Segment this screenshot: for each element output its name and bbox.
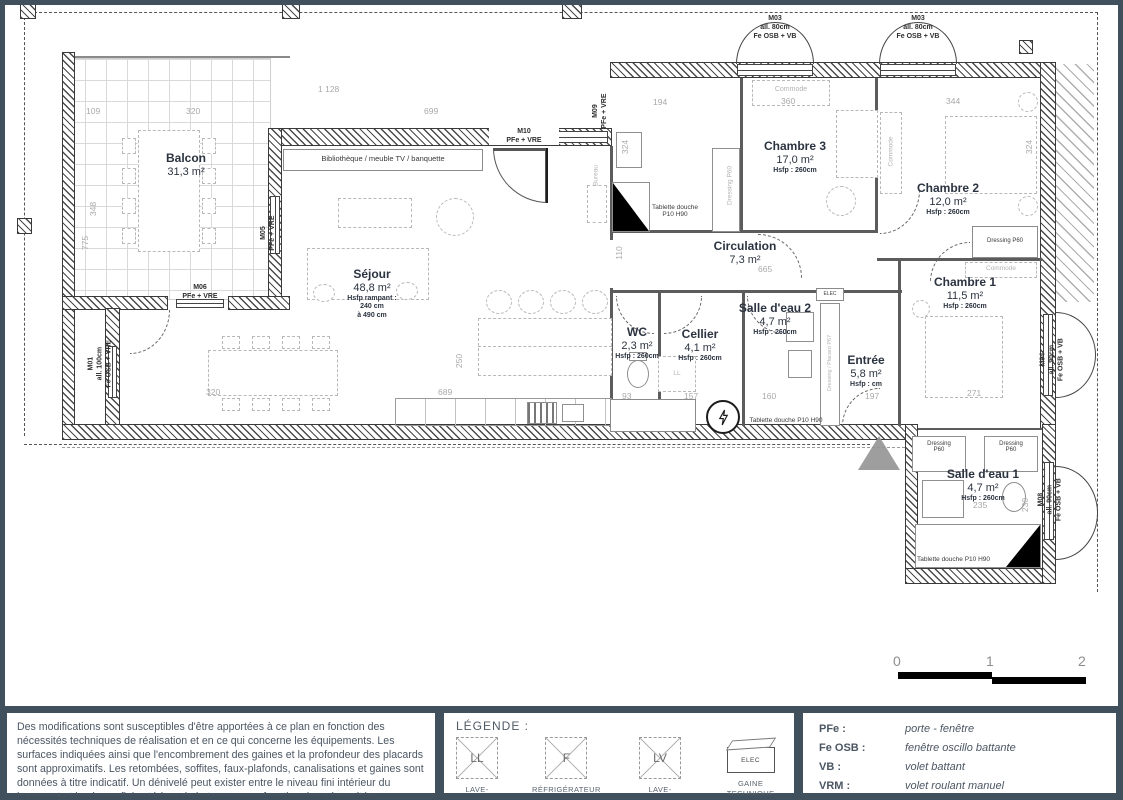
dim-label: 93 [622,391,631,401]
dim-label: 348 [88,202,98,216]
abbr-meaning: volet roulant manuel [905,780,1004,792]
room-height: Hsfp : 260cm [715,329,835,337]
dim-label: 324 [1024,140,1034,154]
bedside-table [1018,92,1038,112]
tablette-sde1-label: Tablette douche P10 H90 [917,556,1027,563]
dim-label: 1 128 [318,84,339,94]
legend-label: LAVE-LINGE [456,785,498,800]
room-height: Hsfp : 260cm [735,167,855,175]
room-area: 5,8 m² [816,368,916,381]
room-height: Hsfp : 260cm [905,303,1025,311]
commode-ch2-label: Commode [888,122,895,182]
legend-symbol: ELEC [741,757,760,764]
room-label-chambre1: Chambre 1 11,5 m² Hsfp : 260cm [905,276,1025,311]
room-label-circulation: Circulation 7,3 m² [685,240,805,266]
dim-label: 157 [684,391,698,401]
room-area: 4,7 m² [715,316,835,329]
legend-label: LAVE-VAISSELLE [635,785,685,800]
room-area: 31,3 m² [126,166,246,179]
abbr-row: VRM : volet roulant manuel [819,780,1100,792]
opening-label-m10: M10 PFe + VRE [489,127,559,145]
room-name: Circulation [685,240,805,254]
room-area: 12,0 m² [888,196,1008,209]
page: Bibliothèque / meuble TV / banquette Dre… [0,0,1123,800]
room-name: Chambre 3 [735,140,855,154]
dim-label: 699 [424,106,438,116]
bed [925,316,1003,398]
door-arc-m01 [130,310,170,354]
legend-symbol: LV [653,751,667,765]
room-label-sejour: Séjour 48,8 m² Hsfp rampant : 240 cm à 4… [312,268,432,320]
chair [122,198,136,214]
scale-0: 0 [893,653,901,669]
room-name: Balcon [126,152,246,166]
sde1-wall-bottom [905,568,1055,584]
room-name: Salle d'eau 1 [923,468,1043,482]
dim-label: 775 [80,236,90,250]
footer: Des modifications sont susceptibles d'êt… [0,706,1123,800]
legend-symbol: LL [470,751,483,765]
opening-label-m08: M08 all. 90cm Fe OSB + VB [1036,460,1063,540]
lot-post [562,3,582,19]
room-label-sde1: Salle d'eau 1 4,7 m² Hsfp : 260cm [923,468,1043,503]
gtl-icon: ELEC [727,747,775,773]
room-label-sde2: Salle d'eau 2 4,7 m² Hsfp : 260cm [715,302,835,337]
scale-2: 2 [1078,653,1086,669]
lot-line-top [24,12,1098,13]
armchair [436,198,474,236]
opening-label-m03-b: M03 all. 80cm Fe OSB + VB [878,14,958,41]
dim-label: 324 [620,140,630,154]
tablette-bath3-label: Tablette douche P10 H90 [640,204,710,218]
refrigerateur-icon: F [545,737,587,779]
chair [252,398,270,411]
abbr-meaning: porte - fenêtre [905,723,974,735]
room-name: Séjour [312,268,432,282]
bedside-table [1018,196,1038,216]
lot-post [1019,40,1033,54]
partition-sde1-top [918,428,1042,430]
legend-label: GAINE TECHNIQUE DE LOGEMENT (GTL) [719,779,782,800]
room-label-chambre2: Chambre 2 12,0 m² Hsfp : 260cm [888,182,1008,217]
balcony-rail [62,56,290,58]
bar-stool [582,290,608,314]
lave-vaisselle-icon: LV [639,737,681,779]
opening-label-m05: M05 PFe + VRE [259,197,277,269]
dim-label: 110 [614,246,624,260]
abbr-meaning: fenêtre oscillo battante [905,742,1016,754]
room-area: 11,5 m² [905,290,1025,303]
room-name: Chambre 1 [905,276,1025,290]
lot-post [282,3,300,19]
dim-label: 360 [781,96,795,106]
floor-plan: Bibliothèque / meuble TV / banquette Dre… [0,0,1123,800]
lave-vaisselle [527,402,557,424]
room-area: 4,7 m² [923,482,1043,495]
partition-corridor-top [612,230,878,233]
room-height: Hsfp : 260cm [923,495,1043,503]
dim-label: 109 [86,106,100,116]
bureau-label: Bureau [593,146,600,206]
commode-ch1-label: Commode [965,265,1037,272]
chair [202,228,216,244]
dressing-sde1b-label: Dressing P60 [984,441,1038,453]
chair [282,336,300,349]
room-name: Salle d'eau 2 [715,302,835,316]
door-leaf [546,148,548,203]
dim-label: 320 [206,387,220,397]
room-height: Hsfp : 260cm [655,355,745,363]
terrace-edge [62,447,905,448]
exterior-wall-top-right-wing [610,62,1056,78]
abbr-key: Fe OSB : [819,742,905,754]
disclaimer-box: Des modifications sont susceptibles d'êt… [6,712,436,794]
dining-table [208,350,338,396]
dim-label: 160 [762,391,776,401]
room-area: 4,1 m² [655,342,745,355]
legend-label: RÉFRIGÉRATEUR [532,785,601,795]
door-arc-sejour [493,148,548,203]
partition-corridor-bottom [612,290,902,293]
lot-post [17,218,32,234]
scale-bar-segment [992,677,1086,684]
bar-stool [550,290,576,314]
dim-label: 194 [653,97,667,107]
commode-ch3-label: Commode [752,86,830,93]
scale-bar-segment [898,672,992,679]
elec-label: ELEC [816,291,844,297]
room-height: Hsfp : cm [816,381,916,389]
abbr-row: VB : volet battant [819,761,1100,773]
legend-item-gtl: ELEC GAINE TECHNIQUE DE LOGEMENT (GTL) [719,737,782,800]
balcony-table [138,130,200,252]
legend-item-lave-vaisselle: LV LAVE-VAISSELLE [635,737,685,800]
room-area: 48,8 m² [312,282,432,295]
room-label-chambre3: Chambre 3 17,0 m² Hsfp : 260cm [735,140,855,175]
exterior-wall-left [62,52,75,430]
exterior-wall-bottom [62,424,907,440]
abbr-key: VRM : [819,780,905,792]
dim-label: 271 [967,388,981,398]
window-m03-a [737,64,813,76]
lave-linge-label: LL [658,370,696,377]
lave-linge-icon: LL [456,737,498,779]
room-area: 7,3 m² [685,254,805,267]
disclaimer-text: Des modifications sont susceptibles d'êt… [17,721,424,800]
partition-ch1-left [898,258,901,426]
room-height: Hsfp : 260cm [888,209,1008,217]
bar-stool [486,290,512,314]
legend-item-refrigerateur: F RÉFRIGÉRATEUR [532,737,601,795]
dressing-bath3-label: Dressing P60 [727,156,734,216]
dressing-sde1a-label: Dressing P60 [912,441,966,453]
room-area: 17,0 m² [735,154,855,167]
bar-stool [518,290,544,314]
dim-label: 320 [186,106,200,116]
abbr-row: Fe OSB : fenêtre oscillo battante [819,742,1100,754]
legend-items: LL LAVE-LINGE F RÉFRIGÉRATEUR LV LAVE-VA… [456,737,782,800]
opening-label-m04: M04 all. 90cm Fe OSB + VB [1038,320,1065,400]
abbr-key: VB : [819,761,905,773]
room-name: Entrée [816,354,916,368]
room-height: Hsfp rampant : 240 cm à 490 cm [312,295,432,319]
dressing-ch2-label: Dressing P60 [972,238,1038,244]
window-m03-b [880,64,956,76]
abbr-meaning: volet battant [905,761,965,773]
abbr-key: PFe : [819,723,905,735]
abbreviations-box: PFe : porte - fenêtre Fe OSB : fenêtre o… [802,712,1117,794]
opening-label-m01: M01 all. 100cm Fe OSB + VRE [86,324,113,404]
kitchen-sink [562,404,584,422]
chair [312,398,330,411]
opening-label-m06: M06 PFe + VRE [165,283,235,301]
lot-line-bottom [24,444,870,445]
biblio-label: Bibliothèque / meuble TV / banquette [286,154,480,163]
dim-label: 689 [438,387,452,397]
overhang-hatch [1056,64,1094,302]
toilet [627,360,649,388]
chair [222,398,240,411]
lot-post [20,4,36,19]
dim-label: 344 [946,96,960,106]
legend-title: LÉGENDE : [456,719,782,733]
chair [222,336,240,349]
lightning-icon [718,409,729,426]
washbasin [788,350,812,378]
dim-label: 250 [454,354,464,368]
chair [282,398,300,411]
legend-item-lave-linge: LL LAVE-LINGE [456,737,498,800]
tablette-sde2-label: Tablette douche P10 H90 [736,417,836,424]
scale-1: 1 [986,653,994,669]
dim-label: 197 [865,391,879,401]
armchair [826,186,856,216]
opening-label-m03-a: M03 all. 80cm Fe OSB + VB [735,14,815,41]
chair [122,228,136,244]
room-name: Chambre 2 [888,182,1008,196]
entrance-marker [858,436,900,470]
room-label-entree: Entrée 5,8 m² Hsfp : cm [816,354,916,389]
chair [252,336,270,349]
chair [202,198,216,214]
chair [312,336,330,349]
gtl-flap [725,738,775,751]
legend-symbol: F [563,751,570,765]
opening-label-m09: M09 PFe + VRE [591,76,609,146]
gtl-symbol [706,400,740,434]
coffee-table [338,198,412,228]
legend-box: LÉGENDE : LL LAVE-LINGE F RÉFRIGÉRATEUR [443,712,795,794]
ramp-box [610,399,696,432]
balcony-bottom-wall-b [228,296,290,310]
abbr-row: PFe : porte - fenêtre [819,723,1100,735]
room-label-balcon: Balcon 31,3 m² [126,152,246,178]
